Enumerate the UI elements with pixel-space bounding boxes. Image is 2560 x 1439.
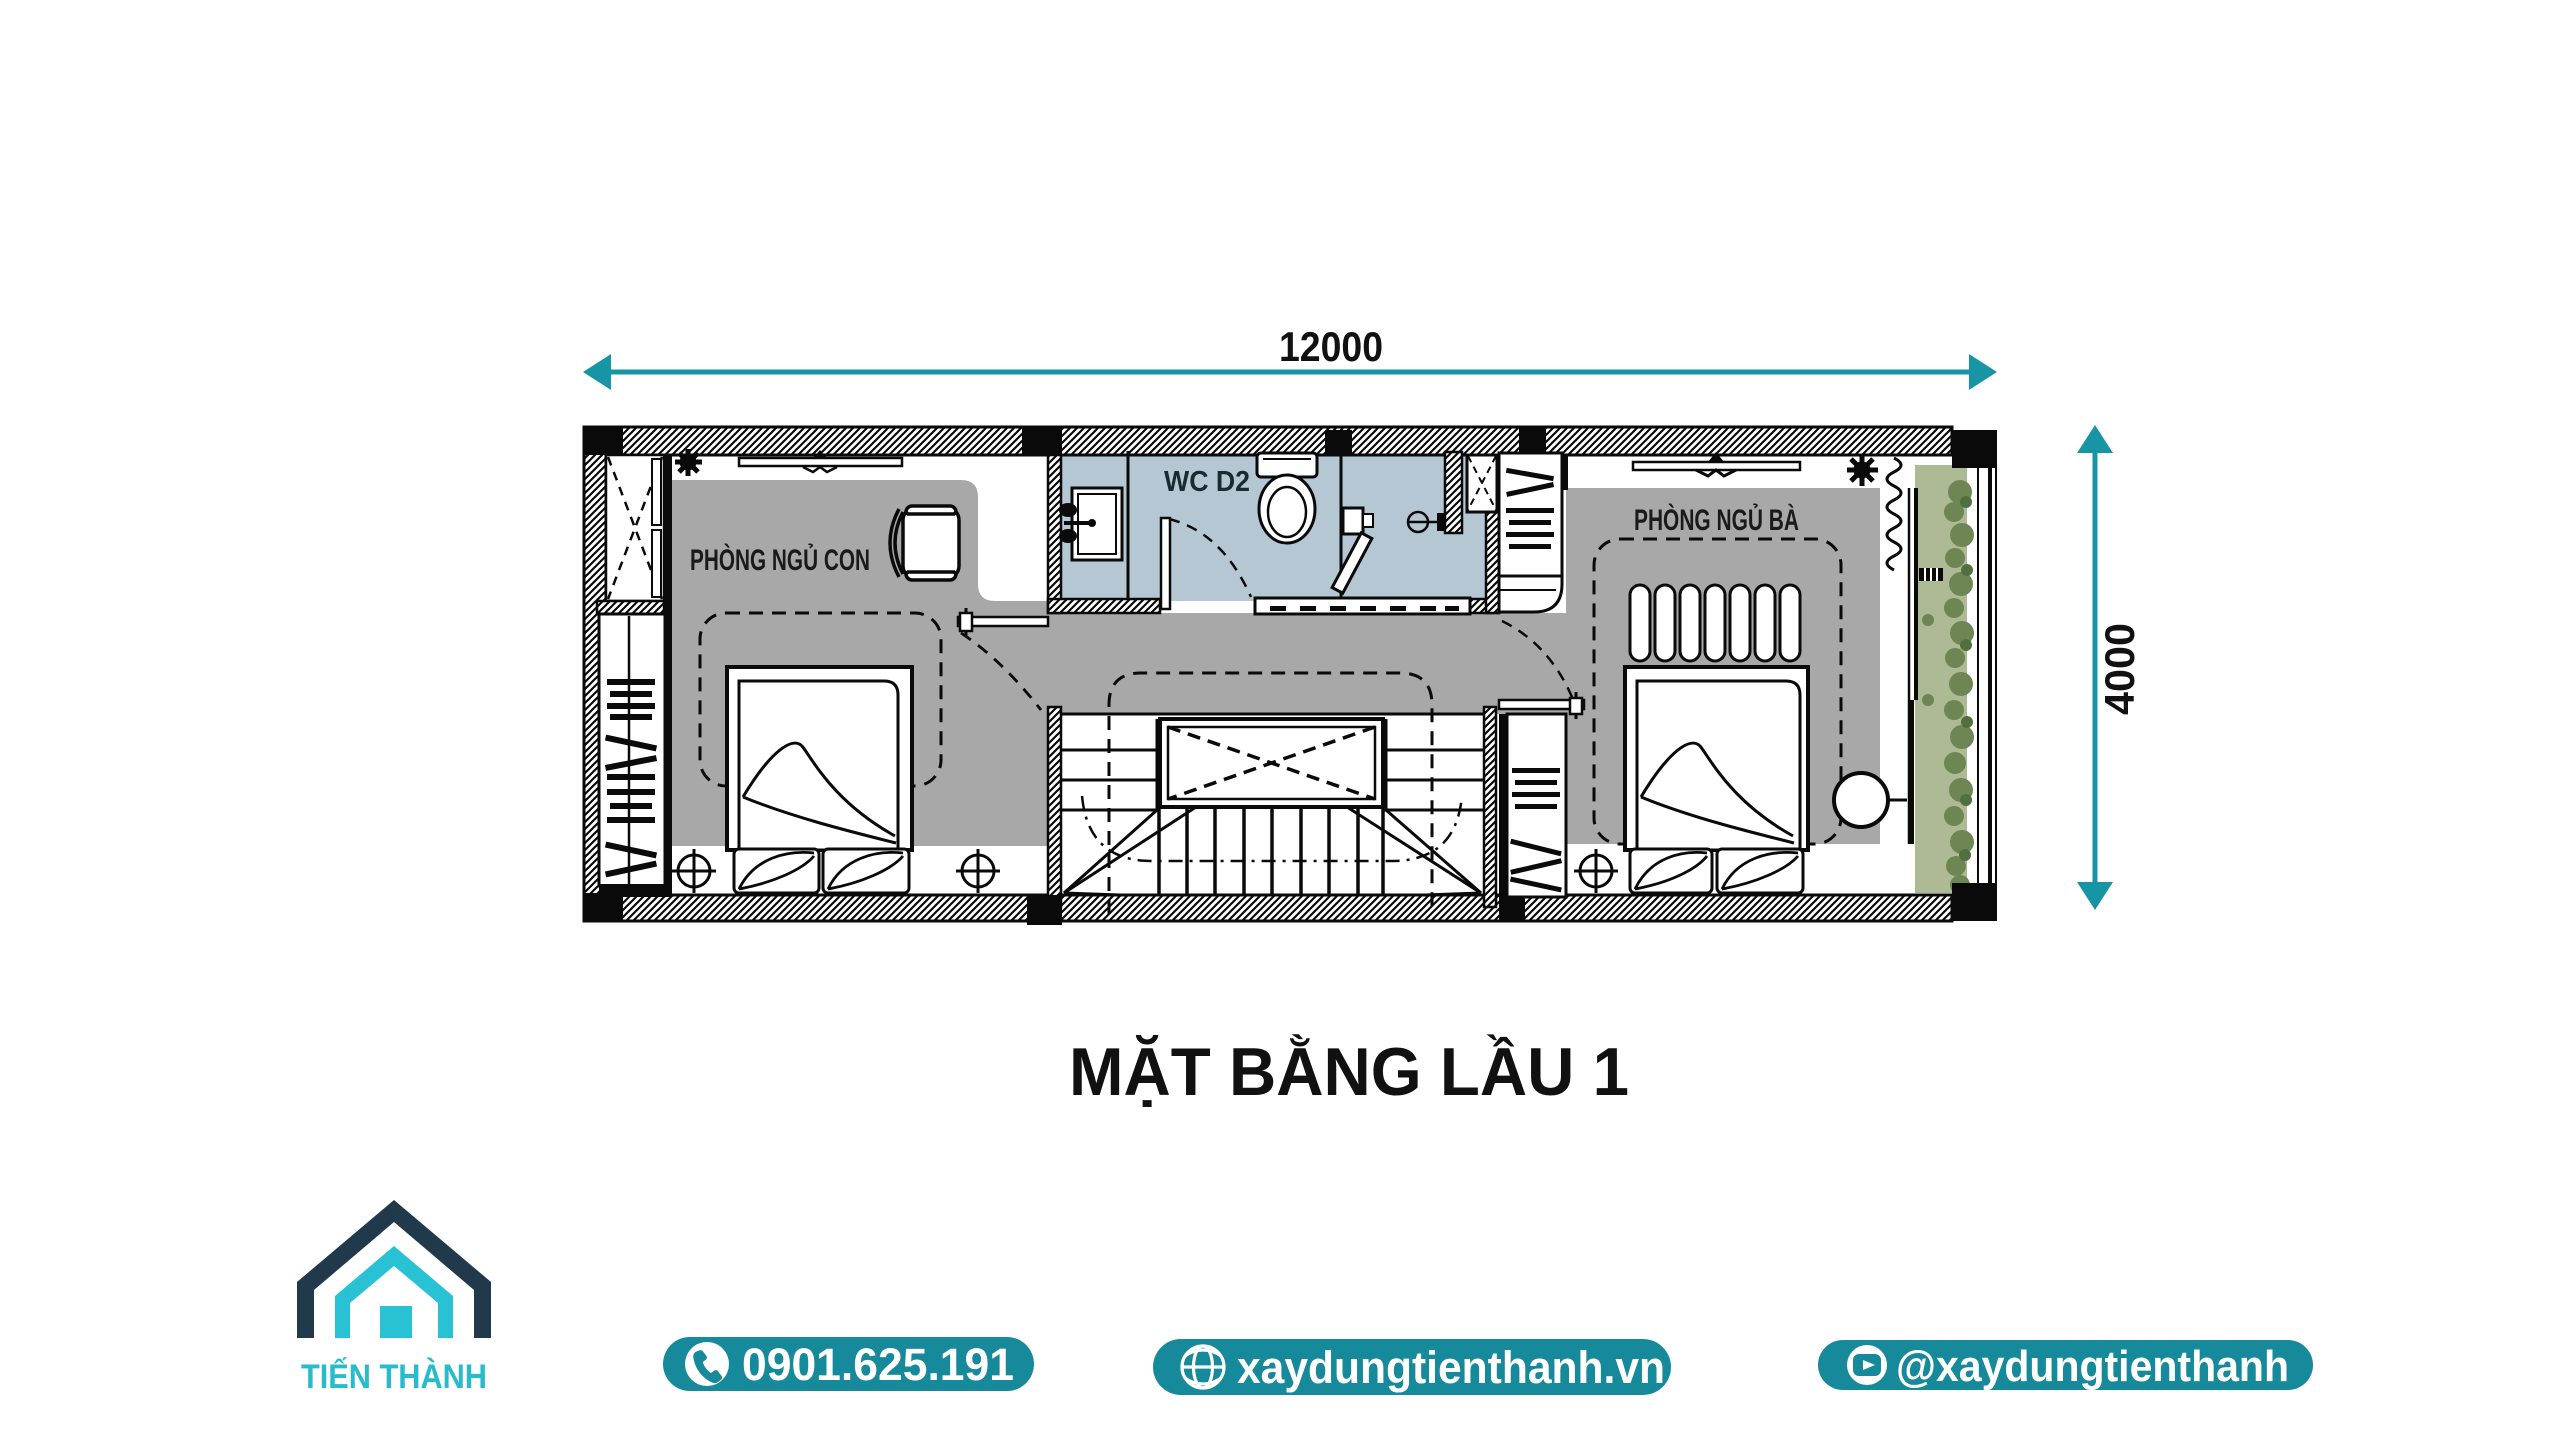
- svg-text:PHÒNG NGỦ BÀ: PHÒNG NGỦ BÀ: [1634, 503, 1799, 537]
- svg-text:MẶT BẰNG LẦU 1: MẶT BẰNG LẦU 1: [1069, 1033, 1629, 1110]
- svg-text:xaydungtienthanh.vn: xaydungtienthanh.vn: [1237, 1342, 1665, 1393]
- svg-text:PHÒNG NGỦ CON: PHÒNG NGỦ CON: [690, 543, 870, 577]
- svg-text:12000: 12000: [1279, 323, 1383, 370]
- svg-text:0901.625.191: 0901.625.191: [742, 1339, 1014, 1390]
- svg-text:WC D2: WC D2: [1164, 466, 1250, 498]
- svg-text:@xaydungtienthanh: @xaydungtienthanh: [1896, 1342, 2289, 1391]
- svg-text:TIẾN THÀNH: TIẾN THÀNH: [301, 1358, 487, 1396]
- svg-text:4000: 4000: [2096, 623, 2143, 715]
